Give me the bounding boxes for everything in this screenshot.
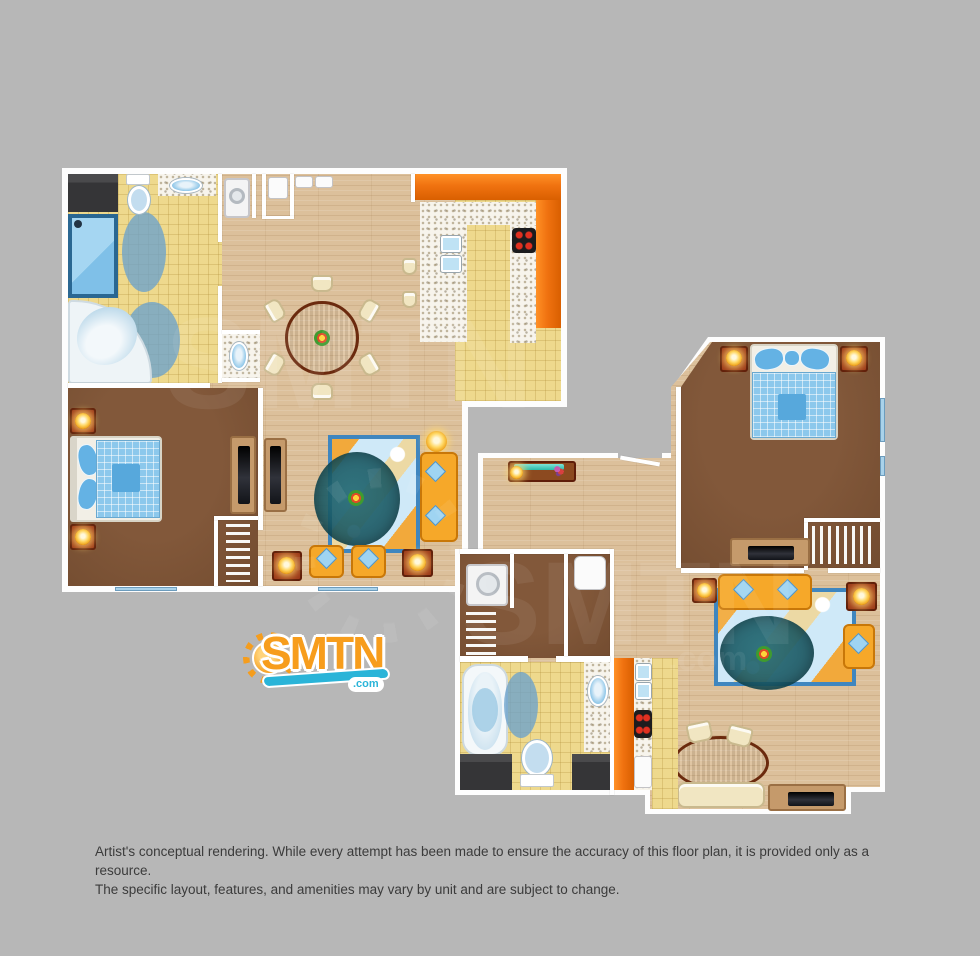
dining-chair (311, 383, 333, 400)
wall (681, 568, 804, 573)
closet-shelves (466, 612, 496, 658)
disclaimer: Artist's conceptual rendering. While eve… (95, 842, 907, 899)
bath-rug (504, 672, 538, 738)
kitchen-floor (652, 658, 678, 809)
pillow (784, 350, 800, 366)
centerpiece-flowers (314, 330, 330, 346)
vase-flowers (553, 465, 565, 477)
wall (258, 556, 263, 586)
window (115, 587, 177, 591)
tv-screen (270, 446, 281, 504)
wall (222, 378, 260, 382)
kitchen-cabinets (536, 200, 561, 328)
kitchen-counter (420, 202, 467, 342)
kitchen-cabinets (415, 174, 561, 200)
disclaimer-line-1: Artist's conceptual rendering. While eve… (95, 842, 907, 880)
table-lamp (846, 350, 862, 366)
wall (262, 174, 266, 218)
refrigerator (634, 756, 652, 788)
closet-shelves (226, 524, 250, 582)
closet-hanging-rods (812, 526, 872, 564)
dryer (574, 556, 606, 590)
wall (290, 174, 294, 218)
tv-screen (788, 792, 834, 806)
kitchen-sink (636, 683, 651, 699)
entry-door (295, 176, 313, 188)
bathtub-water (472, 688, 498, 732)
window (880, 456, 885, 476)
kitchen-sink (636, 664, 651, 680)
toilet-tank (126, 174, 150, 185)
bathroom-closet (572, 754, 610, 790)
wall (218, 174, 222, 242)
wall (510, 554, 514, 608)
table-lamp (697, 583, 712, 598)
vanity-sink (588, 676, 608, 706)
logo-tld-text: .com (348, 677, 384, 692)
dining-chair (311, 275, 333, 292)
entry-door (315, 176, 333, 188)
smtn-logo: SMTN .com (240, 610, 410, 700)
disclaimer-line-2: The specific layout, features, and ameni… (95, 880, 907, 899)
floor-lamp (426, 431, 447, 452)
bar-stool (402, 258, 417, 275)
wall (258, 388, 263, 530)
wall (214, 516, 258, 520)
vanity-sink (170, 178, 202, 193)
shelf-line (262, 216, 294, 219)
bar-stool (402, 291, 417, 308)
dryer (268, 177, 288, 199)
toilet (522, 740, 552, 776)
tv-screen (748, 546, 794, 560)
plant-flowers (756, 646, 772, 662)
wall (411, 174, 415, 202)
table-lamp (510, 466, 523, 479)
powder-sink (230, 342, 248, 370)
toilet (128, 186, 150, 214)
bathroom-closet (68, 174, 118, 212)
bathroom-closet (460, 754, 512, 790)
bath-rug (122, 212, 166, 292)
headboard (70, 436, 77, 522)
wall (460, 549, 612, 554)
wall (564, 554, 568, 656)
sofa (718, 574, 812, 610)
washer-door-icon (229, 188, 245, 204)
table-lamp (853, 588, 870, 605)
toilet-tank (520, 774, 554, 787)
bed-throw (778, 394, 806, 420)
table-lamp (75, 529, 91, 545)
wall (828, 568, 880, 573)
table-lamp (75, 413, 91, 429)
window (880, 398, 885, 442)
wall (804, 518, 880, 522)
washer-door-icon (476, 572, 500, 596)
stove (512, 228, 536, 253)
table-lamp (278, 557, 295, 574)
wall (676, 387, 681, 568)
bed-throw (112, 464, 140, 492)
wall (214, 516, 218, 586)
kitchen-cabinets (614, 658, 634, 790)
logo-brand-text: SMTN (261, 630, 383, 676)
floor-plan-canvas: SMTN SMTN .com SMTN .com Artist's concep… (0, 0, 980, 956)
table-lamp (726, 350, 742, 366)
tv-screen (238, 446, 250, 504)
kitchen-sink (441, 256, 461, 272)
wall (252, 174, 256, 218)
shower-head-icon (74, 220, 82, 228)
kitchen-sink (441, 236, 461, 252)
stove (634, 710, 652, 738)
dining-bench (677, 782, 765, 808)
